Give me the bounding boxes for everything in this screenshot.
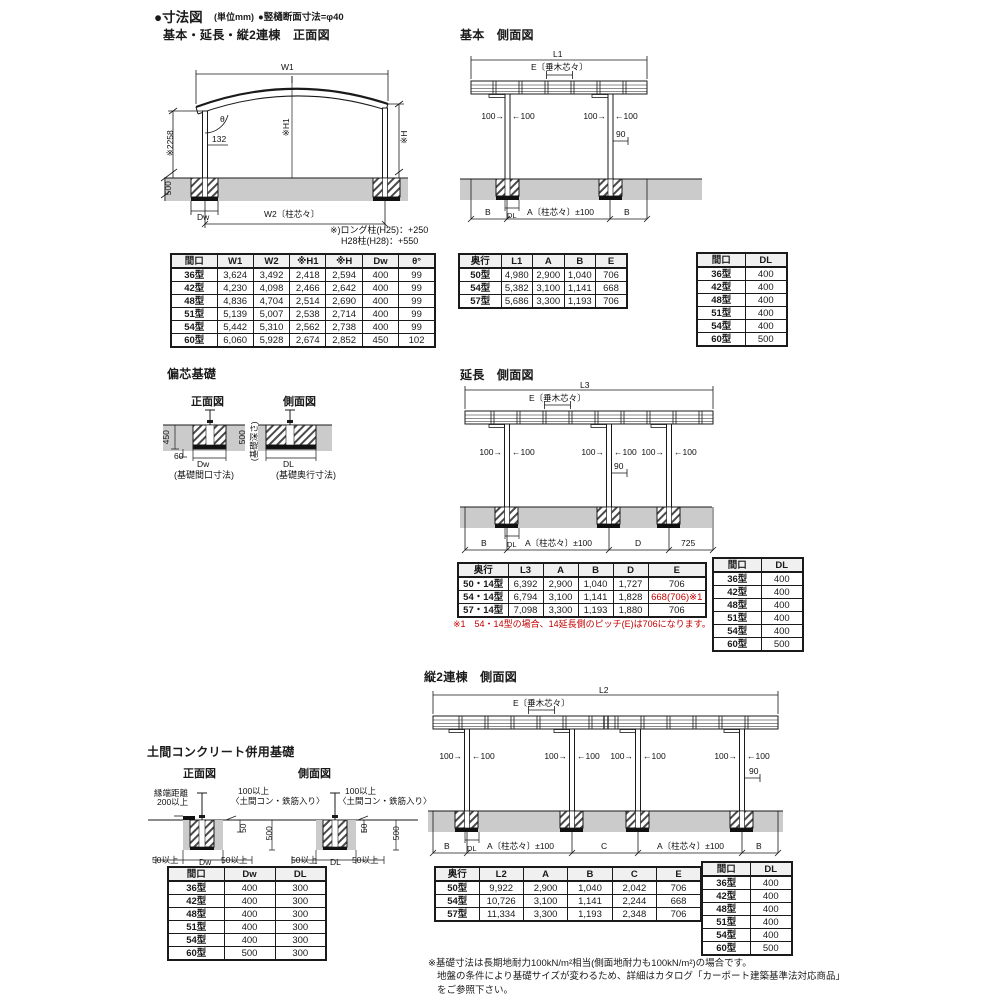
table-row: 50型4,9802,9001,040706 (459, 268, 627, 282)
dim-label-e: E〔垂木芯々〕 (529, 394, 586, 403)
table-cell: 5,007 (253, 308, 289, 321)
table-row: 51型400 (702, 916, 792, 929)
dim-label-100: 100→ (433, 752, 462, 761)
row-header: 42型 (168, 895, 224, 908)
table-cell: 3,100 (533, 282, 565, 295)
table-row: 36型3,6243,4922,4182,59440099 (171, 268, 435, 282)
section-heading-doma: 土間コンクリート併用基礎 (147, 743, 295, 760)
dim-label-theta: θ (220, 115, 225, 124)
column-header: B (568, 867, 612, 881)
table-cell: 2,594 (326, 268, 362, 282)
row-header: 60型 (697, 333, 745, 347)
table-cell: 500 (750, 942, 792, 956)
columns (489, 94, 613, 179)
table-cell: 2,538 (290, 308, 326, 321)
table-cell: 400 (761, 625, 803, 638)
column-header: C (612, 867, 656, 881)
table-cell: 99 (399, 282, 435, 295)
henshin-side-drawing (258, 408, 336, 468)
table-cell: 1,040 (568, 881, 612, 895)
column-header: Dw (362, 254, 398, 268)
table-row: 51型400 (697, 307, 787, 320)
table-cell: 5,310 (253, 321, 289, 334)
row-header: 60型 (713, 638, 761, 652)
henshin-front-caption: (基礎間口寸法) (174, 470, 234, 482)
table-cell: 5,382 (501, 282, 533, 295)
column-header: 奥行 (435, 867, 479, 881)
table-cell: 3,492 (253, 268, 289, 282)
row-header: 54型 (168, 934, 224, 947)
row-header: 48型 (713, 599, 761, 612)
table-row: 54・14型6,7943,1001,1411,828668(706)※1 (458, 591, 706, 604)
table-cell: 2,244 (612, 895, 656, 908)
columns (489, 424, 672, 507)
row-header: 48型 (171, 295, 217, 308)
column-header: E (657, 867, 701, 881)
table-cell: 400 (761, 612, 803, 625)
table-cell: 3,300 (533, 295, 565, 309)
page-title-unit: (単位mm) (214, 10, 254, 23)
table-cell: 400 (224, 895, 275, 908)
table-cell: 400 (224, 908, 275, 921)
column-header: 間口 (168, 867, 224, 881)
dim-label-500: 500 (384, 829, 408, 838)
dim-label-100: 100→ (475, 112, 504, 121)
table-cell: 400 (750, 903, 792, 916)
column-header: Dw (224, 867, 275, 881)
table-row: 48型400300 (168, 908, 326, 921)
table-cell: 300 (275, 947, 326, 961)
table-cell: 2,900 (523, 881, 567, 895)
table-cell: 2,900 (533, 268, 565, 282)
table-row: 48型400 (713, 599, 803, 612)
columns (203, 108, 388, 178)
row-header: 36型 (697, 267, 745, 281)
table-cell: 5,139 (217, 308, 253, 321)
column-header: DL (750, 862, 792, 876)
dim-label-100: ←100 (614, 448, 637, 457)
dim-label-450: 450 (154, 433, 178, 442)
column-header: E (648, 563, 706, 577)
table-cell: 2,690 (326, 295, 362, 308)
column-header: ※H (326, 254, 362, 268)
column-header: 間口 (171, 254, 217, 268)
dl-spec-table-2: 間口DL36型40042型40048型40051型40054型40060型500 (712, 557, 804, 652)
dim-label-a: A〔柱芯々〕±100 (527, 208, 594, 217)
table-row: 36型400 (697, 267, 787, 281)
dim-label-500: 500 (156, 184, 180, 193)
section-heading-henshin: 偏芯基礎 (167, 365, 216, 382)
table-cell: 706 (648, 577, 706, 591)
table-cell: 300 (275, 895, 326, 908)
table-row: 48型4,8364,7042,5142,69040099 (171, 295, 435, 308)
dim-label-100over: 100以上 (345, 787, 376, 796)
row-header: 36型 (702, 876, 750, 890)
section-heading-basic-side: 基本 側面図 (460, 26, 534, 43)
dim-label-50over: 50以上 (352, 856, 378, 865)
table-cell: 11,334 (479, 908, 523, 922)
dim-label-d: D (635, 539, 641, 548)
row-header: 51型 (702, 916, 750, 929)
table-cell: 1,727 (613, 577, 648, 591)
table-cell: 6,392 (508, 577, 543, 591)
dim-label-b: B (481, 539, 487, 548)
table-row: 48型400 (697, 294, 787, 307)
column-header: A (533, 254, 565, 268)
henshin-side-caption: (基礎奥行寸法) (276, 470, 336, 482)
table-cell: 6,060 (217, 334, 253, 348)
table-cell: 2,514 (290, 295, 326, 308)
foundation-footnote-line3: をご参照下さい。 (437, 984, 845, 997)
dim-label-60: 60 (174, 452, 183, 461)
dl-spec-table-1: 間口DL36型40042型40048型40051型40054型40060型500 (696, 252, 788, 347)
column-header: ※H1 (290, 254, 326, 268)
column-header: W1 (217, 254, 253, 268)
table-cell: 300 (275, 881, 326, 895)
row-header: 36型 (168, 881, 224, 895)
table-cell: 102 (399, 334, 435, 348)
table-row: 42型400 (713, 586, 803, 599)
row-header: 51型 (697, 307, 745, 320)
table-row: 54型5,3823,1001,141668 (459, 282, 627, 295)
dim-label-a: A〔柱芯々〕±100 (487, 842, 554, 851)
henshin-side-label: 側面図 (283, 393, 316, 409)
basic-side-drawing (455, 48, 707, 233)
table-row: 54型10,7263,1001,1412,244668 (435, 895, 701, 908)
table-row: 54型400 (697, 320, 787, 333)
henshin-front-label: 正面図 (191, 393, 224, 409)
dim-label-132: 132 (212, 135, 226, 144)
row-header: 60型 (171, 334, 217, 348)
table-row: 42型400 (702, 890, 792, 903)
table-cell: 3,300 (543, 604, 578, 618)
dim-label-725: 725 (681, 539, 695, 548)
table-cell: 1,141 (564, 282, 596, 295)
dim-label-b: B (485, 208, 491, 217)
dim-label-b: B (444, 842, 450, 851)
table-row: 54型400300 (168, 934, 326, 947)
table-cell: 2,562 (290, 321, 326, 334)
table-cell: 2,738 (326, 321, 362, 334)
table-cell: 706 (657, 881, 701, 895)
ext-side-drawing (455, 380, 720, 562)
table-row: 51型5,1395,0072,5382,71440099 (171, 308, 435, 321)
table-row: 54型400 (713, 625, 803, 638)
dim-label-90: 90 (749, 767, 758, 776)
table-cell: 2,348 (612, 908, 656, 922)
dim-label-100: ←100 (674, 448, 697, 457)
column-header: DL (761, 558, 803, 572)
row-header: 54型 (697, 320, 745, 333)
ext-depth-table: 奥行L3ABDE50・14型6,3922,9001,0401,72770654・… (457, 562, 707, 618)
table-cell: 706 (596, 268, 628, 282)
dim-label-90: 90 (616, 130, 625, 139)
row-header: 50型 (459, 268, 501, 282)
table-cell: 400 (362, 268, 398, 282)
row-header: 51型 (171, 308, 217, 321)
table-cell: 4,230 (217, 282, 253, 295)
ext-side-figure: L3 E〔垂木芯々〕 100→ ←100 100→ ←100 100→ ←100… (455, 380, 720, 562)
column-header: L1 (501, 254, 533, 268)
table-cell: 1,880 (613, 604, 648, 618)
row-header: 36型 (171, 268, 217, 282)
dim-label-100: 100→ (604, 752, 633, 761)
dim-label-a: A〔柱芯々〕±100 (525, 539, 592, 548)
dimension-lines (161, 70, 404, 228)
row-header: 48型 (702, 903, 750, 916)
table-cell: 400 (362, 295, 398, 308)
column-header: L2 (479, 867, 523, 881)
dim-label-dw: Dw (197, 460, 209, 469)
row-header: 54型 (459, 282, 501, 295)
table-row: 60型500 (713, 638, 803, 652)
dim-label-100: ←100 (643, 752, 666, 761)
table-cell: 400 (750, 929, 792, 942)
table-row: 60型6,0605,9282,6742,852450102 (171, 334, 435, 348)
row-header: 48型 (168, 908, 224, 921)
dim-label-100: 100→ (538, 752, 567, 761)
doma-spec-table: 間口DwDL36型40030042型40030048型40030051型4003… (167, 866, 327, 961)
table-cell: 706 (596, 295, 628, 309)
roof-panel (465, 411, 713, 424)
column-header: DL (745, 253, 787, 267)
table-cell: 400 (224, 921, 275, 934)
table-row: 36型400 (713, 572, 803, 586)
table-cell: 1,040 (564, 268, 596, 282)
table-cell: 1,141 (578, 591, 613, 604)
table-cell: 3,624 (217, 268, 253, 282)
dim-label-100over: 100以上 (238, 787, 269, 796)
table-cell: 2,466 (290, 282, 326, 295)
column-header: B (564, 254, 596, 268)
dim-label-90: 90 (614, 462, 623, 471)
dim-label-100: ←100 (472, 752, 495, 761)
roof-panel (471, 81, 647, 94)
row-header: 51型 (168, 921, 224, 934)
table-cell: 1,141 (568, 895, 612, 908)
table-cell: 4,098 (253, 282, 289, 295)
dim-label-2258: ※2258 (150, 139, 190, 148)
column-header: A (523, 867, 567, 881)
table-cell: 1,193 (578, 604, 613, 618)
table-cell: 400 (761, 586, 803, 599)
table-cell: 2,042 (612, 881, 656, 895)
column-header: 奥行 (458, 563, 508, 577)
dim-label-dl: DL (507, 541, 517, 549)
table-cell: 1,828 (613, 591, 648, 604)
table-cell: 4,836 (217, 295, 253, 308)
dim-label-b: B (624, 208, 630, 217)
table-cell: 400 (745, 320, 787, 333)
row-header: 57型 (459, 295, 501, 309)
table-row: 48型400 (702, 903, 792, 916)
table-row: 42型400300 (168, 895, 326, 908)
column-header: 間口 (702, 862, 750, 876)
column-header: E (596, 254, 628, 268)
table-cell: 300 (275, 921, 326, 934)
section-heading-front-view: 基本・延長・縦2連棟 正面図 (163, 26, 330, 43)
dim-label-b: B (756, 842, 762, 851)
table-cell: 450 (362, 334, 398, 348)
dim-label-100: ←100 (512, 112, 535, 121)
dim-label-100: ←100 (615, 112, 638, 121)
row-header: 36型 (713, 572, 761, 586)
dim-label-100: 100→ (575, 448, 604, 457)
dim-label-w2: W2〔柱芯々〕 (264, 210, 319, 219)
table-cell: 500 (224, 947, 275, 961)
rento-side-drawing (423, 681, 795, 866)
row-header: 51型 (713, 612, 761, 625)
table-cell: 9,922 (479, 881, 523, 895)
row-header: 42型 (171, 282, 217, 295)
columns (449, 729, 745, 811)
table-cell: 7,098 (508, 604, 543, 618)
column-header: W2 (253, 254, 289, 268)
basic-side-figure: L1 E〔垂木芯々〕 100→ ←100 100→ ←100 90 DL B A… (455, 48, 707, 233)
dim-label-dl: DL (330, 858, 341, 867)
table-cell: 400 (362, 282, 398, 295)
row-header: 54型 (713, 625, 761, 638)
table-cell: 99 (399, 295, 435, 308)
table-cell: 2,714 (326, 308, 362, 321)
table-row: 51型400 (713, 612, 803, 625)
table-row: 50型9,9222,9001,0402,042706 (435, 881, 701, 895)
table-cell: 400 (761, 599, 803, 612)
dim-label-e: E〔垂木芯々〕 (513, 699, 570, 708)
dim-label-c: C (601, 842, 607, 851)
ext-pitch-note: ※1 54・14型の場合、14延長側のピッチ(E)は706になります。 (453, 619, 711, 631)
long-column-note-2: H28柱(H28)：+550 (341, 236, 418, 248)
row-header: 42型 (702, 890, 750, 903)
dim-label-50over: 50以上 (291, 856, 317, 865)
table-cell: 99 (399, 268, 435, 282)
table-cell: 6,794 (508, 591, 543, 604)
table-cell: 2,674 (290, 334, 326, 348)
table-cell: 668(706)※1 (648, 591, 706, 604)
column-header: 奥行 (459, 254, 501, 268)
foundation-footnote: ※基礎寸法は長期地耐力100kN/m²相当(側面地耐力も100kN/m²)の場合… (428, 957, 845, 997)
dim-label-100: 100→ (473, 448, 502, 457)
row-header: 42型 (697, 281, 745, 294)
table-cell: 2,852 (326, 334, 362, 348)
column-header: 間口 (713, 558, 761, 572)
table-row: 57・14型7,0983,3001,1931,880706 (458, 604, 706, 618)
table-cell: 400 (750, 916, 792, 929)
table-cell: 400 (224, 881, 275, 895)
row-header: 54型 (702, 929, 750, 942)
row-header: 42型 (713, 586, 761, 599)
dim-label-100: ←100 (747, 752, 770, 761)
dim-label-50: 50 (234, 824, 252, 833)
dim-label-dl: DL (467, 845, 477, 853)
table-cell: 706 (648, 604, 706, 618)
table-cell: 5,686 (501, 295, 533, 309)
table-cell: 500 (745, 333, 787, 347)
dim-label-edge2: 200以上 (157, 798, 188, 807)
table-cell: 400 (745, 294, 787, 307)
table-cell: 2,900 (543, 577, 578, 591)
rento-side-figure: L2 E〔垂木芯々〕 100→ ←100 100→ ←100 100→ ←100… (423, 681, 795, 866)
table-row: 50・14型6,3922,9001,0401,727706 (458, 577, 706, 591)
table-cell: 1,193 (564, 295, 596, 309)
table-cell: 300 (275, 908, 326, 921)
dim-label-l3: L3 (580, 381, 589, 390)
table-cell: 706 (657, 908, 701, 922)
henshin-side-figure (258, 408, 336, 468)
table-cell: 5,442 (217, 321, 253, 334)
long-column-note-1: ※)ロング柱(H25)：+250 (330, 225, 428, 237)
row-header: 48型 (697, 294, 745, 307)
column-header: D (613, 563, 648, 577)
table-cell: 300 (275, 934, 326, 947)
row-header: 50・14型 (458, 577, 508, 591)
dim-label-w1: W1 (281, 63, 294, 72)
table-row: 57型5,6863,3001,193706 (459, 295, 627, 309)
dim-label-dl: DL (283, 460, 294, 469)
front-spec-table: 間口W1W2※H1※HDwθ°36型3,6243,4922,4182,59440… (170, 253, 436, 348)
foundation-footnote-line2: 地盤の条件により基礎サイズが変わるため、詳細はカタログ「カーポート建築基準法対応… (437, 970, 845, 983)
roof-panel (433, 716, 778, 729)
dim-label-100: 100→ (635, 448, 664, 457)
table-cell: 5,928 (253, 334, 289, 348)
row-header: 54型 (171, 321, 217, 334)
column-header: DL (275, 867, 326, 881)
table-cell: 668 (657, 895, 701, 908)
page-title: ●寸法図 (154, 6, 203, 26)
table-row: 60型500 (702, 942, 792, 956)
row-header: 50型 (435, 881, 479, 895)
dim-label-doma-rebar: 〈土間コン・鉄筋入り〉 (338, 797, 432, 806)
row-header: 57・14型 (458, 604, 508, 618)
dl-spec-table-3: 間口DL36型40042型40048型40051型40054型40060型500 (701, 861, 793, 956)
basic-depth-table: 奥行L1ABE50型4,9802,9001,04070654型5,3823,10… (458, 253, 628, 309)
foundation-footnote-line1: ※基礎寸法は長期地耐力100kN/m²相当(側面地耐力も100kN/m²)の場合… (428, 957, 845, 970)
table-cell: 400 (745, 281, 787, 294)
row-header: 54・14型 (458, 591, 508, 604)
dim-label-h: ※H (384, 133, 424, 142)
dimension-drawing-page: ●寸法図 (単位mm) ●竪樋断面寸法=φ40 基本・延長・縦2連棟 正面図 基… (0, 0, 1000, 1000)
table-row: 57型11,3343,3001,1932,348706 (435, 908, 701, 922)
row-header: 54型 (435, 895, 479, 908)
column-header: θ° (399, 254, 435, 268)
table-cell: 500 (761, 638, 803, 652)
table-row: 60型500300 (168, 947, 326, 961)
dim-label-l2: L2 (599, 686, 608, 695)
column-header: L3 (508, 563, 543, 577)
row-header: 60型 (702, 942, 750, 956)
dim-label-100: ←100 (512, 448, 535, 457)
table-cell: 4,704 (253, 295, 289, 308)
dim-label-100: ←100 (577, 752, 600, 761)
table-cell: 3,100 (523, 895, 567, 908)
table-cell: 668 (596, 282, 628, 295)
table-cell: 4,980 (501, 268, 533, 282)
table-row: 42型400 (697, 281, 787, 294)
dim-label-dw: Dw (197, 213, 209, 222)
row-header: 60型 (168, 947, 224, 961)
dim-label-dl: DL (507, 212, 517, 220)
table-row: 36型400 (702, 876, 792, 890)
table-cell: 1,040 (578, 577, 613, 591)
table-row: 54型5,4425,3102,5622,73840099 (171, 321, 435, 334)
table-cell: 3,300 (523, 908, 567, 922)
table-cell: 400 (745, 267, 787, 281)
dim-label-h1: ※H1 (266, 123, 306, 132)
table-cell: 400 (745, 307, 787, 320)
column-header: A (543, 563, 578, 577)
dim-label-100: 100→ (577, 112, 606, 121)
table-cell: 2,418 (290, 268, 326, 282)
